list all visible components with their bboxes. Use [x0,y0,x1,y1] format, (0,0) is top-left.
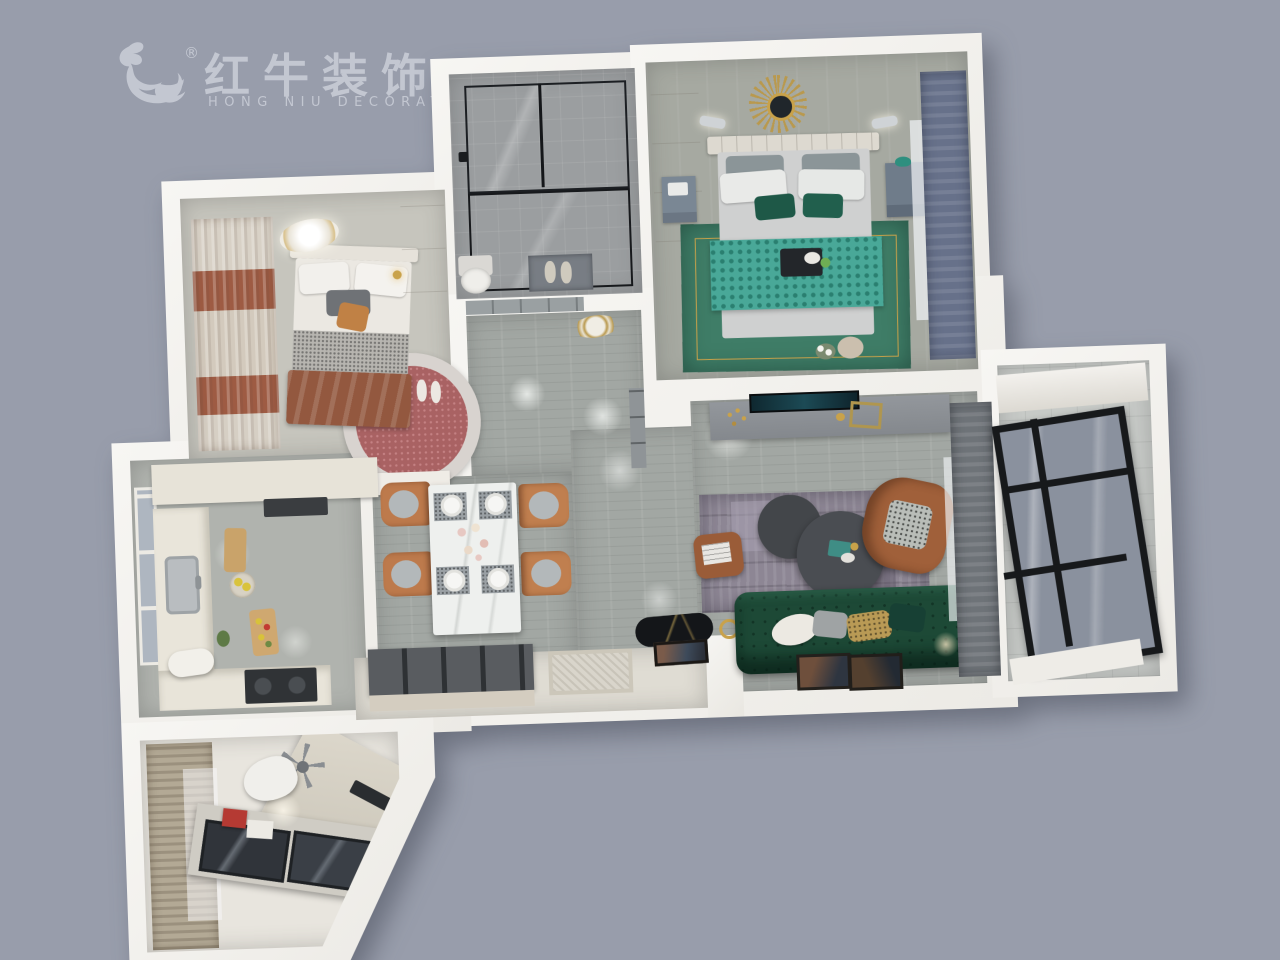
red-box [222,808,248,828]
white-paper [246,820,273,840]
floor-plan [0,0,1280,960]
balcony-sill-top [996,362,1149,413]
render-canvas: ® 红牛装饰 HONG NIU DECORATION [0,0,1280,960]
balcony-window [992,406,1163,674]
